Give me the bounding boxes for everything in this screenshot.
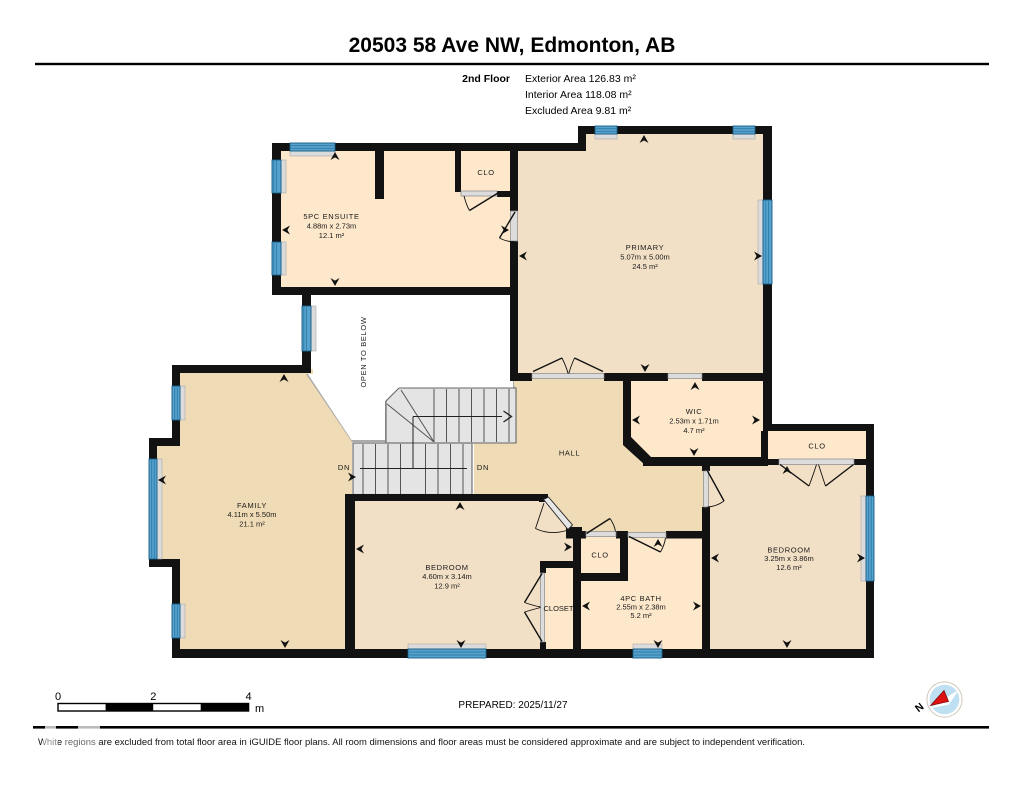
svg-text:BEDROOM: BEDROOM [425, 563, 468, 572]
svg-text:21.1 m²: 21.1 m² [239, 520, 265, 529]
svg-text:4: 4 [246, 691, 252, 703]
svg-text:3.25m x 3.86m: 3.25m x 3.86m [764, 554, 814, 563]
svg-text:Excluded Area 9.81 m²: Excluded Area 9.81 m² [525, 105, 632, 117]
svg-text:DN: DN [477, 463, 489, 472]
svg-text:5PC ENSUITE: 5PC ENSUITE [303, 212, 359, 221]
svg-text:CLO: CLO [477, 168, 494, 177]
svg-text:5.07m x 5.00m: 5.07m x 5.00m [620, 253, 670, 262]
svg-text:12.9 m²: 12.9 m² [434, 582, 460, 591]
svg-text:4.7 m²: 4.7 m² [683, 426, 705, 435]
svg-text:m: m [255, 703, 264, 715]
svg-text:4.88m x 2.73m: 4.88m x 2.73m [307, 222, 357, 231]
svg-text:CLOSET: CLOSET [543, 604, 573, 613]
svg-text:HALL: HALL [559, 449, 580, 458]
svg-text:2: 2 [150, 691, 156, 703]
svg-text:Exterior Area 126.83 m²: Exterior Area 126.83 m² [525, 73, 636, 85]
svg-text:2.53m x 1.71m: 2.53m x 1.71m [669, 417, 719, 426]
svg-text:Interior Area 118.08 m²: Interior Area 118.08 m² [525, 89, 632, 101]
svg-text:WIC: WIC [686, 407, 703, 416]
svg-text:0: 0 [55, 691, 61, 703]
svg-text:FAMILY: FAMILY [237, 501, 267, 510]
svg-text:4.11m x 5.50m: 4.11m x 5.50m [227, 510, 276, 519]
svg-text:White regions are excluded fro: White regions are excluded from total fl… [38, 737, 805, 748]
svg-text:PREPARED: 2025/11/27: PREPARED: 2025/11/27 [458, 700, 568, 711]
svg-text:2nd Floor: 2nd Floor [462, 73, 510, 85]
svg-text:12.1 m²: 12.1 m² [319, 231, 345, 240]
svg-text:24.5 m²: 24.5 m² [632, 262, 658, 271]
svg-text:CLO: CLO [591, 551, 608, 560]
svg-text:PRIMARY: PRIMARY [626, 243, 665, 252]
svg-text:OPEN TO BELOW: OPEN TO BELOW [359, 316, 368, 387]
svg-text:20503 58 Ave NW, Edmonton, AB: 20503 58 Ave NW, Edmonton, AB [349, 34, 676, 57]
svg-text:CLO: CLO [808, 442, 825, 451]
svg-text:5.2 m²: 5.2 m² [630, 611, 652, 620]
svg-text:DN: DN [338, 463, 350, 472]
svg-text:4.60m x 3.14m: 4.60m x 3.14m [422, 572, 472, 581]
svg-text:12.6 m²: 12.6 m² [776, 563, 802, 572]
